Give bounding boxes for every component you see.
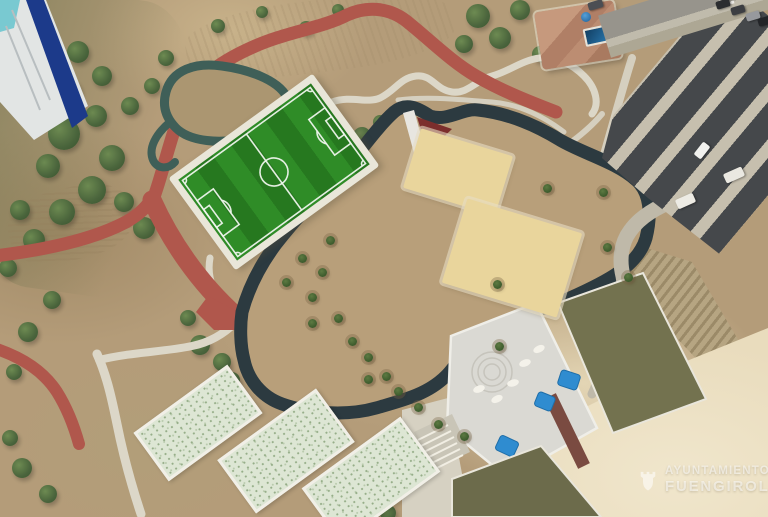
sapling-tree bbox=[543, 184, 552, 193]
sapling-tree bbox=[460, 432, 469, 441]
sapling-tree bbox=[434, 420, 443, 429]
sapling-tree bbox=[382, 372, 391, 381]
sapling-tree bbox=[394, 387, 403, 396]
watermark: AYUNTAMIENTO FUENGIROLA bbox=[638, 464, 768, 496]
sapling-tree bbox=[308, 319, 317, 328]
sapling-tree bbox=[308, 293, 317, 302]
sapling-tree bbox=[334, 314, 343, 323]
sapling-tree bbox=[298, 254, 307, 263]
sapling-tree bbox=[603, 243, 612, 252]
sapling-tree bbox=[364, 353, 373, 362]
sapling-tree bbox=[599, 188, 608, 197]
sapling-tree bbox=[414, 403, 423, 412]
sapling-tree bbox=[282, 278, 291, 287]
watermark-org-name: AYUNTAMIENTO bbox=[665, 464, 768, 478]
municipal-crest-icon bbox=[638, 467, 658, 493]
watermark-text: AYUNTAMIENTO FUENGIROLA bbox=[665, 464, 768, 496]
pool-umbrella bbox=[581, 12, 591, 22]
sapling-tree bbox=[318, 268, 327, 277]
sapling-tree bbox=[348, 337, 357, 346]
sapling-tree bbox=[364, 375, 373, 384]
sapling-tree bbox=[495, 342, 504, 351]
sapling-tree bbox=[493, 280, 502, 289]
watermark-city-name: FUENGIROLA bbox=[665, 478, 768, 495]
aerial-photo-sports-park: AYUNTAMIENTO FUENGIROLA bbox=[0, 0, 768, 517]
sapling-tree bbox=[624, 273, 633, 282]
sapling-tree bbox=[326, 236, 335, 245]
